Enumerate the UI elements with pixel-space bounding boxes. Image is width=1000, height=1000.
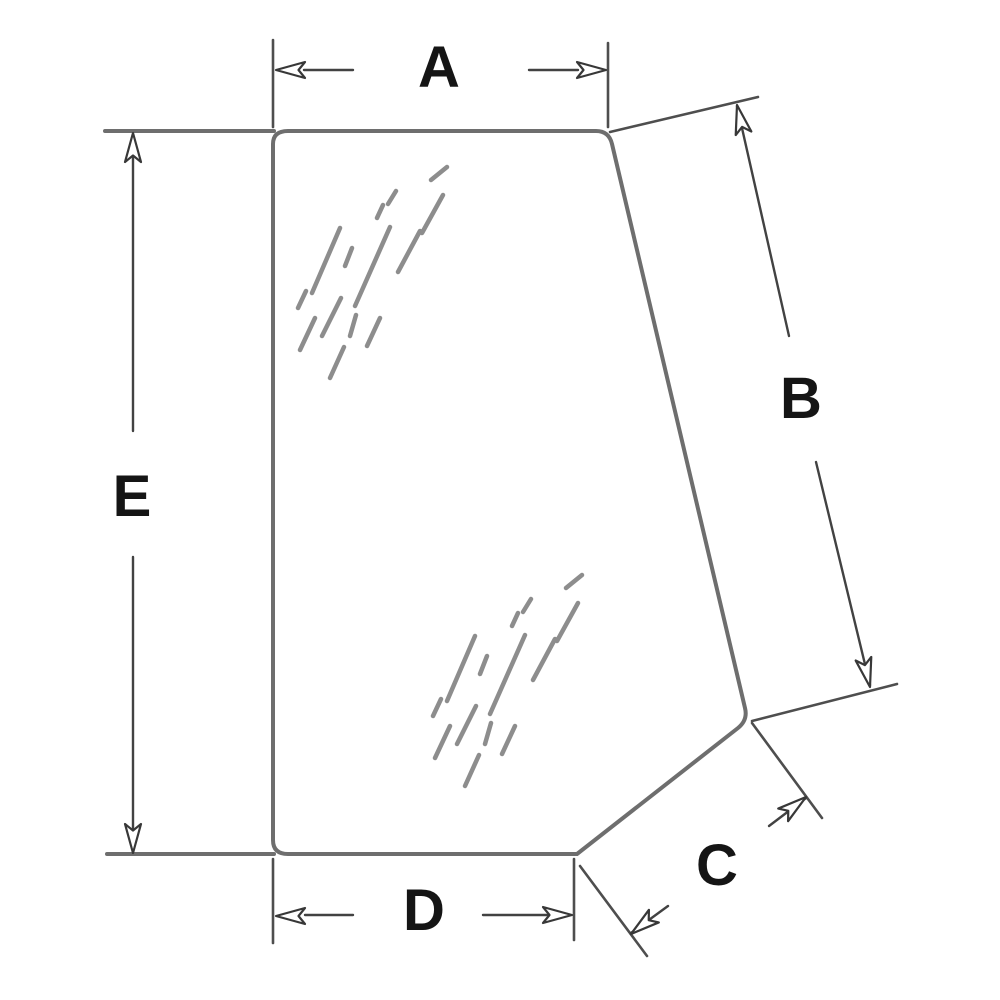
glass-panel-outline [273, 131, 746, 854]
drawing-canvas: A B C D E [0, 0, 1000, 1000]
dimension-c-label: C [696, 837, 738, 895]
dim-d-arrow-left-icon [276, 908, 305, 924]
dim-b-arrow-top-icon [729, 103, 751, 135]
dimension-e-label: E [113, 468, 152, 526]
dim-b-arrow-bottom-icon [856, 657, 878, 689]
dimension-b [610, 97, 897, 721]
dim-b-line-lower [816, 462, 870, 685]
dim-c-extension-lower [580, 866, 647, 956]
dimension-a-label: A [418, 39, 460, 97]
dim-b-extension-bottom [752, 684, 897, 721]
dimension-d-label: D [403, 882, 445, 940]
dimension-b-label: B [780, 370, 822, 428]
dim-a-arrow-right-icon [577, 62, 606, 78]
dim-a-arrow-left-icon [276, 62, 305, 78]
glass-shine-lower-icon [433, 575, 582, 786]
dim-b-line-upper [737, 106, 789, 336]
glass-shine-upper-icon [298, 167, 447, 378]
